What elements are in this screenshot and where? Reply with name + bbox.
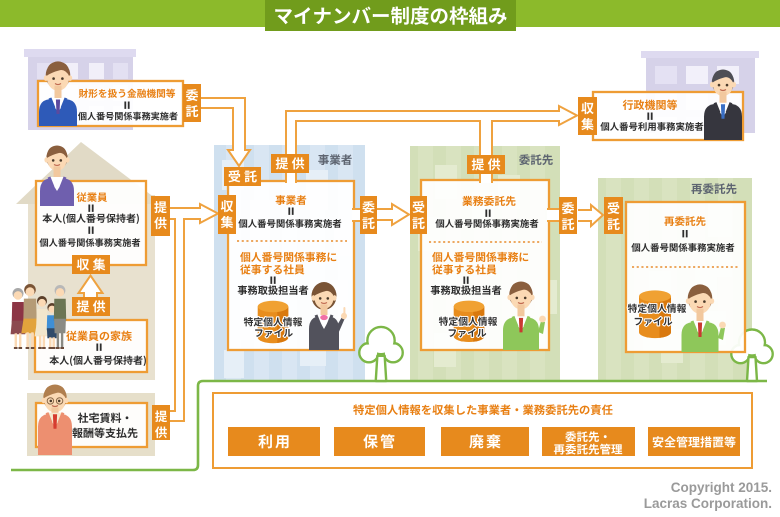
svg-text:Lacras Corporation.: Lacras Corporation.	[644, 496, 772, 511]
svg-text:Copyright 2015.: Copyright 2015.	[671, 480, 772, 495]
